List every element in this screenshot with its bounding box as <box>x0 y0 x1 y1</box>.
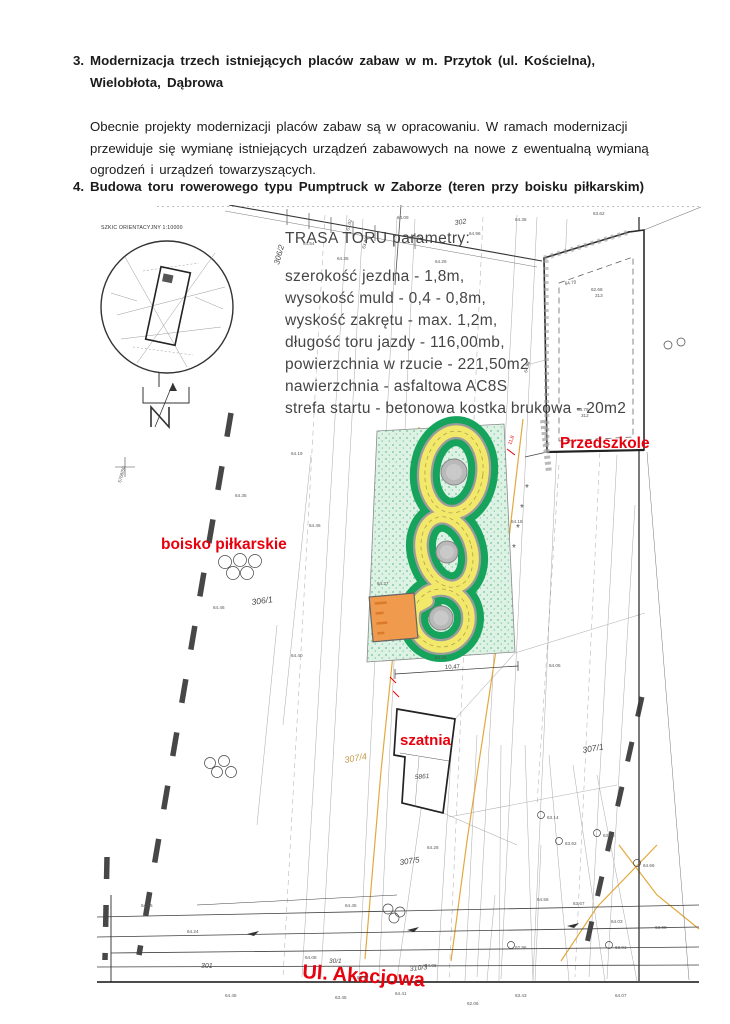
elevation-number: 64.19 <box>291 451 303 456</box>
inset-title: SZKIC ORIENTACYJNY 1:10000 <box>101 225 183 231</box>
paragraph-line2: przewiduje się wymianę istniejących urzą… <box>90 138 675 160</box>
elevation-number: 64.27 <box>377 581 389 586</box>
elevation-number: 64.36 <box>515 217 527 222</box>
elevation-number: 64.66 <box>643 863 655 868</box>
svg-text:*: * <box>525 483 529 494</box>
elevation-number: 63.43 <box>515 993 527 998</box>
elevation-number: 63.62 <box>593 211 605 216</box>
elevation-number: 63.67 <box>573 901 585 906</box>
elevation-number: 64.45 <box>225 993 237 998</box>
elevation-number: 64.41 <box>395 991 407 996</box>
plot-301: 301 <box>201 963 213 970</box>
plot-302: 302 <box>454 218 467 227</box>
param-line: wysokość muld - 0,4 - 0,8m, <box>284 290 486 307</box>
param-line: strefa startu - betonowa kostka brukowa … <box>285 400 626 417</box>
elevation-number: 64.18 <box>511 519 523 524</box>
elevation-number: 64.26 <box>435 259 447 264</box>
elevation-number: 64.07 <box>615 993 627 998</box>
plot-306-1: 306/1 <box>251 594 274 607</box>
item-3-number: 3. <box>73 50 90 94</box>
elevation-number: 62.96 <box>515 945 527 950</box>
item-3-title-line2: Wielobłota, Dąbrowa <box>90 72 595 94</box>
elevation-number: 64.09 <box>397 215 409 220</box>
elevation-number: 64.46 <box>213 605 225 610</box>
elevation-number: 64.45 <box>309 523 321 528</box>
paragraph-line1: Obecnie projekty modernizacji placów zab… <box>90 116 675 138</box>
param-line: wyskość zakrętu - max. 1,2m, <box>284 312 498 329</box>
elevation-number: 64.28 <box>427 845 439 850</box>
elevation-number: 63.28 <box>603 833 615 838</box>
elevation-number: 64.45 <box>345 903 357 908</box>
svg-text:*: * <box>516 523 520 534</box>
elevation-number: 64.30 <box>409 235 421 240</box>
site-plan-map: 10,47 11,8 **** <box>97 205 702 1013</box>
svg-text:*: * <box>520 503 524 514</box>
north-arrow <box>143 373 189 427</box>
svg-text:*: * <box>512 543 516 554</box>
elevation-number: 312 <box>581 413 589 418</box>
elevation-number: 63.45 <box>335 995 347 1000</box>
heading-item-4: 4. Budowa toru rowerowego typu Pumptruck… <box>73 176 693 198</box>
elevation-number: 64.03 <box>611 919 623 924</box>
elevation-number: 63.88 <box>655 925 667 930</box>
param-line: nawierzchnia - asfaltowa AC8S <box>285 378 507 395</box>
label-przedszkole: Przedszkole <box>560 435 650 452</box>
elevation-number: 64.24 <box>187 929 199 934</box>
elevation-number: 313 <box>595 293 603 298</box>
building-number-5861: 5861 <box>415 773 430 781</box>
plot-307-4: 307/4 <box>344 751 368 765</box>
label-szatnia: szatnia <box>400 732 452 749</box>
elevation-number: 64.55 <box>141 903 153 908</box>
elevation-number: 64.96 <box>469 231 481 236</box>
start-pad <box>369 593 418 642</box>
heading-item-3: 3. Modernizacja trzech istniejących plac… <box>73 50 673 94</box>
elevation-number: 64.54 <box>303 241 315 246</box>
elevation-number: 64.08 <box>305 955 317 960</box>
plot-307-5: 307/5 <box>399 855 421 867</box>
elevation-number: 64.25 <box>435 655 447 660</box>
item-4-number: 4. <box>73 176 90 198</box>
elevation-number: 62.68 <box>591 287 603 292</box>
label-boisko-pilkarskie: boisko piłkarskie <box>161 536 287 553</box>
szatnia-building <box>394 709 455 813</box>
param-line: długość toru jazdy - 116,00mb, <box>285 334 505 351</box>
item-4-title: Budowa toru rowerowego typu Pumptruck w … <box>90 176 644 198</box>
dimension-value: 10,47 <box>445 664 461 671</box>
elevation-number: 63.62 <box>565 841 577 846</box>
elevation-number: 63.78 <box>577 407 589 412</box>
elevation-number: 64.35 <box>337 256 349 261</box>
plot-306-2: 306/2 <box>272 243 286 265</box>
item-3-title-line1: Modernizacja trzech istniejących placów … <box>90 50 595 72</box>
elevation-number: 63.91 <box>615 945 627 950</box>
param-line: szerokość jezdna - 1,8m, <box>285 268 465 285</box>
elevation-number: 64.06 <box>425 963 437 968</box>
elevation-number: 63.97 <box>357 975 369 980</box>
elevation-number: 64.05 <box>549 663 561 668</box>
plot-30-1: 30/1 <box>329 958 342 965</box>
elevation-number: 64.56 <box>537 897 549 902</box>
elevation-number: 63.14 <box>547 815 559 820</box>
elevation-number: 64.35 <box>235 493 247 498</box>
red-dimension: 11,8 <box>507 435 516 446</box>
param-line: powierzchnia w rzucie - 221,50m2 <box>285 356 529 373</box>
elevation-number: 64.40 <box>291 653 303 658</box>
elevation-number: 62.06 <box>467 1001 479 1006</box>
paragraph-item-3: Obecnie projekty modernizacji placów zab… <box>90 116 675 181</box>
orientation-inset: SZKIC ORIENTACYJNY 1:10000 <box>101 225 233 373</box>
document-page: 3. Modernizacja trzech istniejących plac… <box>0 0 730 1024</box>
